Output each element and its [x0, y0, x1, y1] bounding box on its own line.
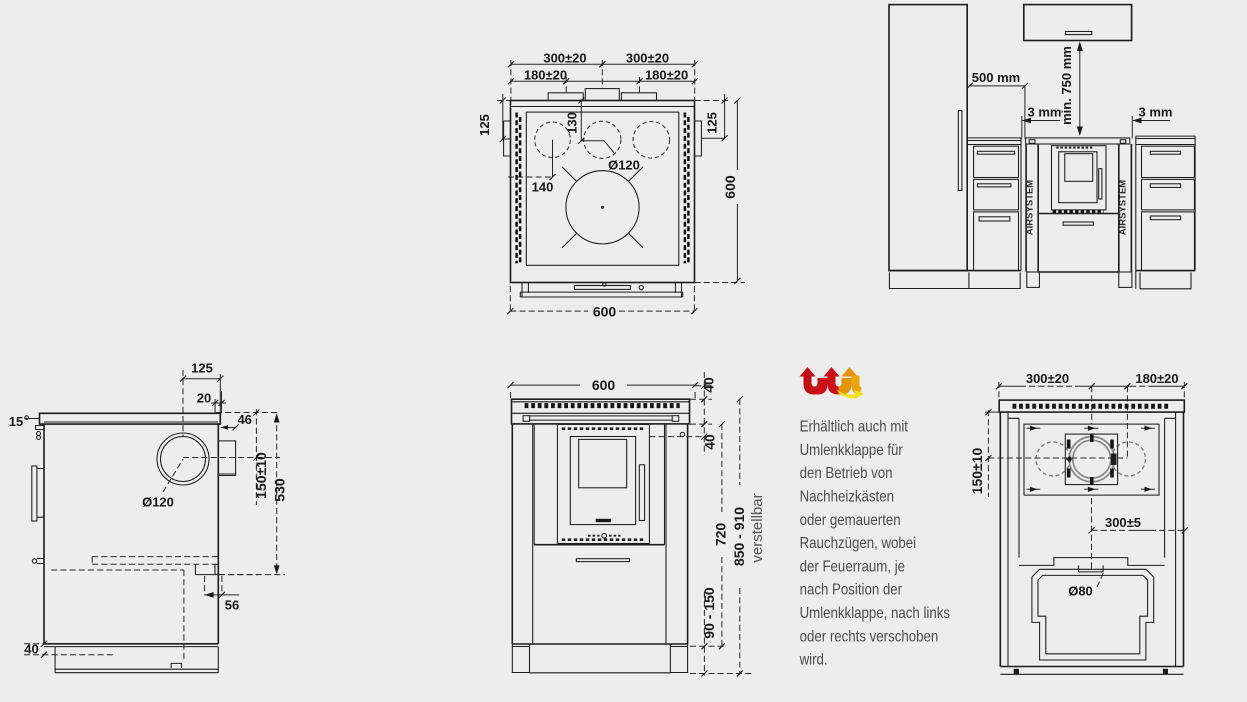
- svg-text:150±10: 150±10: [969, 447, 985, 494]
- svg-text:oder gemauerten: oder gemauerten: [800, 512, 901, 529]
- svg-text:Nachheizkästen: Nachheizkästen: [800, 488, 894, 505]
- svg-text:850 - 910: 850 - 910: [731, 507, 747, 566]
- svg-text:125: 125: [191, 361, 213, 376]
- svg-text:125: 125: [705, 112, 720, 134]
- svg-text:300±20: 300±20: [1026, 371, 1069, 386]
- svg-text:20: 20: [197, 391, 211, 406]
- svg-text:Umlenkklappe für: Umlenkklappe für: [800, 442, 903, 459]
- svg-text:3 mm: 3 mm: [1028, 105, 1062, 120]
- svg-text:530: 530: [271, 478, 287, 502]
- svg-text:Ø80: Ø80: [1068, 584, 1093, 599]
- svg-text:130: 130: [565, 112, 580, 134]
- svg-text:15: 15: [9, 414, 23, 429]
- svg-text:den Betrieb von: den Betrieb von: [800, 465, 893, 482]
- svg-text:300±5: 300±5: [1105, 515, 1141, 530]
- svg-text:180±20: 180±20: [645, 68, 688, 83]
- svg-text:verstellbar: verstellbar: [749, 493, 766, 562]
- svg-text:Rauchzügen, wobei: Rauchzügen, wobei: [800, 535, 917, 552]
- svg-text:Ø120: Ø120: [142, 495, 174, 510]
- svg-text:720: 720: [713, 523, 729, 547]
- svg-text:600: 600: [722, 175, 738, 199]
- svg-text:300±20: 300±20: [543, 50, 586, 65]
- svg-text:oder rechts verschoben: oder rechts verschoben: [800, 628, 939, 645]
- svg-text:300±20: 300±20: [626, 50, 669, 65]
- svg-text:600: 600: [593, 303, 617, 319]
- svg-text:AIRSYSTEM: AIRSYSTEM: [1117, 180, 1128, 236]
- svg-text:600: 600: [592, 377, 616, 393]
- svg-text:der Feuerraum, je: der Feuerraum, je: [800, 558, 905, 575]
- svg-text:Umlenkklappe, nach links: Umlenkklappe, nach links: [800, 605, 950, 622]
- svg-text:140: 140: [532, 180, 554, 195]
- svg-text:56: 56: [225, 598, 239, 613]
- svg-text:150±10: 150±10: [253, 452, 269, 499]
- svg-text:125: 125: [477, 114, 492, 136]
- svg-text:90 - 150: 90 - 150: [701, 587, 717, 639]
- svg-text:46: 46: [237, 412, 251, 427]
- svg-text:40: 40: [701, 377, 717, 393]
- svg-text:40: 40: [24, 642, 38, 657]
- svg-text:wird.: wird.: [799, 652, 828, 669]
- svg-text:40: 40: [702, 434, 718, 450]
- svg-text:AIRSYSTEM: AIRSYSTEM: [1025, 180, 1036, 236]
- svg-text:Ø120: Ø120: [608, 158, 640, 173]
- svg-text:180±20: 180±20: [1135, 371, 1178, 386]
- svg-text:3 mm: 3 mm: [1139, 105, 1173, 120]
- svg-text:180±20: 180±20: [524, 68, 567, 83]
- svg-text:nach Position der: nach Position der: [800, 582, 903, 599]
- svg-text:Erhältlich auch mit: Erhältlich auch mit: [800, 419, 908, 436]
- svg-text:500 mm: 500 mm: [972, 70, 1020, 85]
